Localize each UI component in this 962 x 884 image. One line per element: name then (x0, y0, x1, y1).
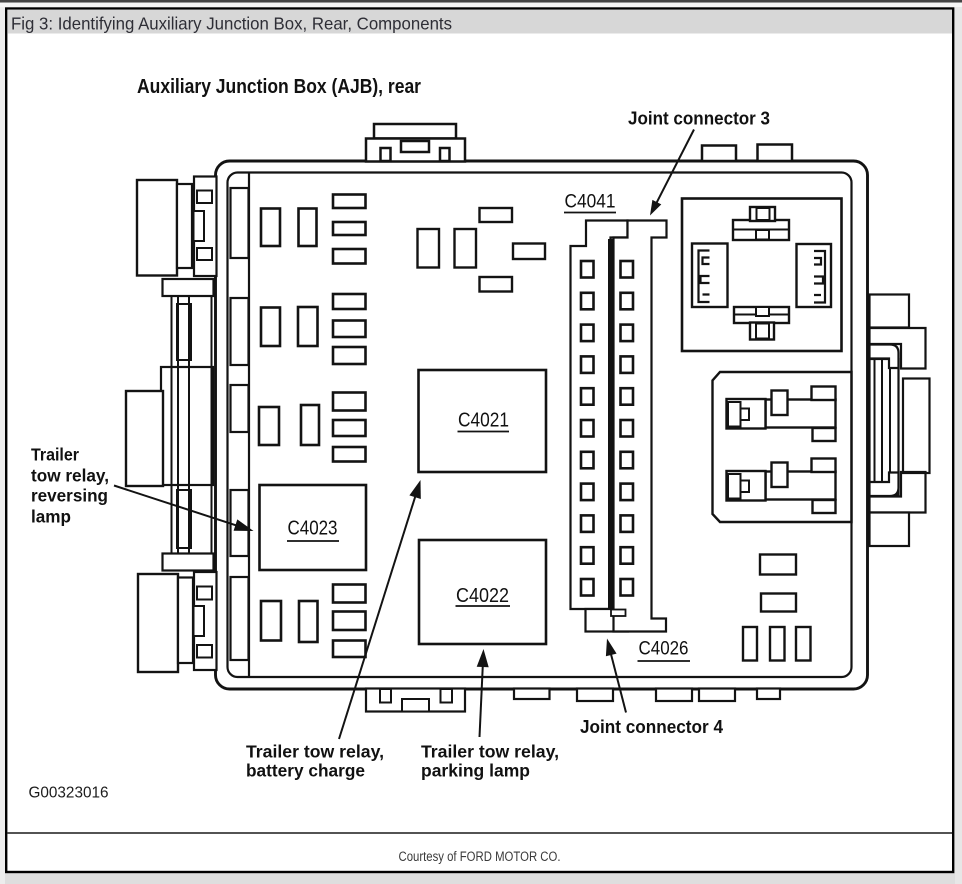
svg-text:Trailer: Trailer (31, 445, 79, 465)
svg-text:Trailer tow relay,: Trailer tow relay, (421, 742, 559, 762)
svg-text:C4026: C4026 (639, 638, 689, 660)
svg-text:C4041: C4041 (565, 191, 616, 213)
svg-text:Trailer tow relay,: Trailer tow relay, (246, 742, 384, 762)
svg-text:Joint connector 4: Joint connector 4 (580, 717, 723, 737)
svg-text:C4022: C4022 (456, 584, 509, 607)
svg-text:Joint connector 3: Joint connector 3 (628, 109, 770, 129)
svg-text:C4021: C4021 (458, 409, 509, 432)
svg-text:parking lamp: parking lamp (421, 761, 530, 781)
svg-text:G00323016: G00323016 (29, 785, 109, 802)
svg-text:lamp: lamp (31, 507, 71, 527)
svg-text:tow relay,: tow relay, (31, 466, 109, 486)
svg-text:Fig 3: Identifying Auxiliary J: Fig 3: Identifying Auxiliary Junction Bo… (11, 14, 452, 34)
svg-text:Courtesy of FORD MOTOR CO.: Courtesy of FORD MOTOR CO. (399, 849, 561, 864)
svg-text:Auxiliary Junction Box (AJB),: Auxiliary Junction Box (AJB), rear (137, 76, 421, 98)
svg-text:battery charge: battery charge (246, 761, 365, 781)
svg-text:C4023: C4023 (288, 518, 338, 540)
svg-text:reversing: reversing (31, 486, 108, 506)
